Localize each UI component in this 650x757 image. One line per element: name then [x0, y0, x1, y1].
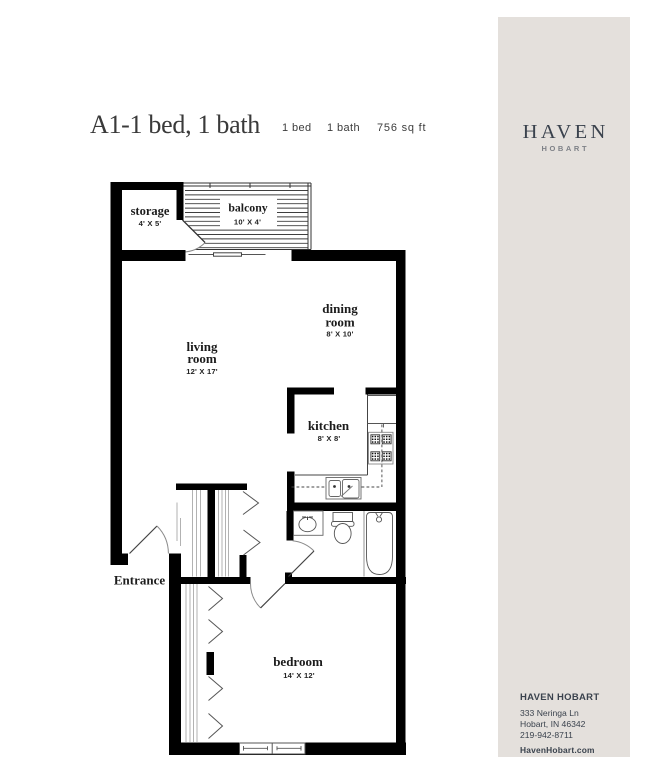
svg-text:kitchen: kitchen — [308, 418, 350, 433]
svg-text:14' X 12': 14' X 12' — [283, 671, 315, 680]
svg-text:4' X 5': 4' X 5' — [139, 219, 162, 228]
svg-text:8' X 10': 8' X 10' — [326, 330, 353, 339]
svg-text:10' X 4': 10' X 4' — [234, 218, 261, 227]
svg-text:room: room — [325, 315, 355, 330]
svg-text:8' X 8': 8' X 8' — [318, 434, 341, 443]
svg-text:Entrance: Entrance — [114, 573, 166, 588]
svg-text:bedroom: bedroom — [273, 654, 323, 669]
svg-text:12' X 17': 12' X 17' — [186, 367, 218, 376]
svg-text:balcony: balcony — [228, 201, 267, 215]
svg-text:storage: storage — [131, 204, 170, 218]
svg-text:room: room — [187, 351, 217, 366]
